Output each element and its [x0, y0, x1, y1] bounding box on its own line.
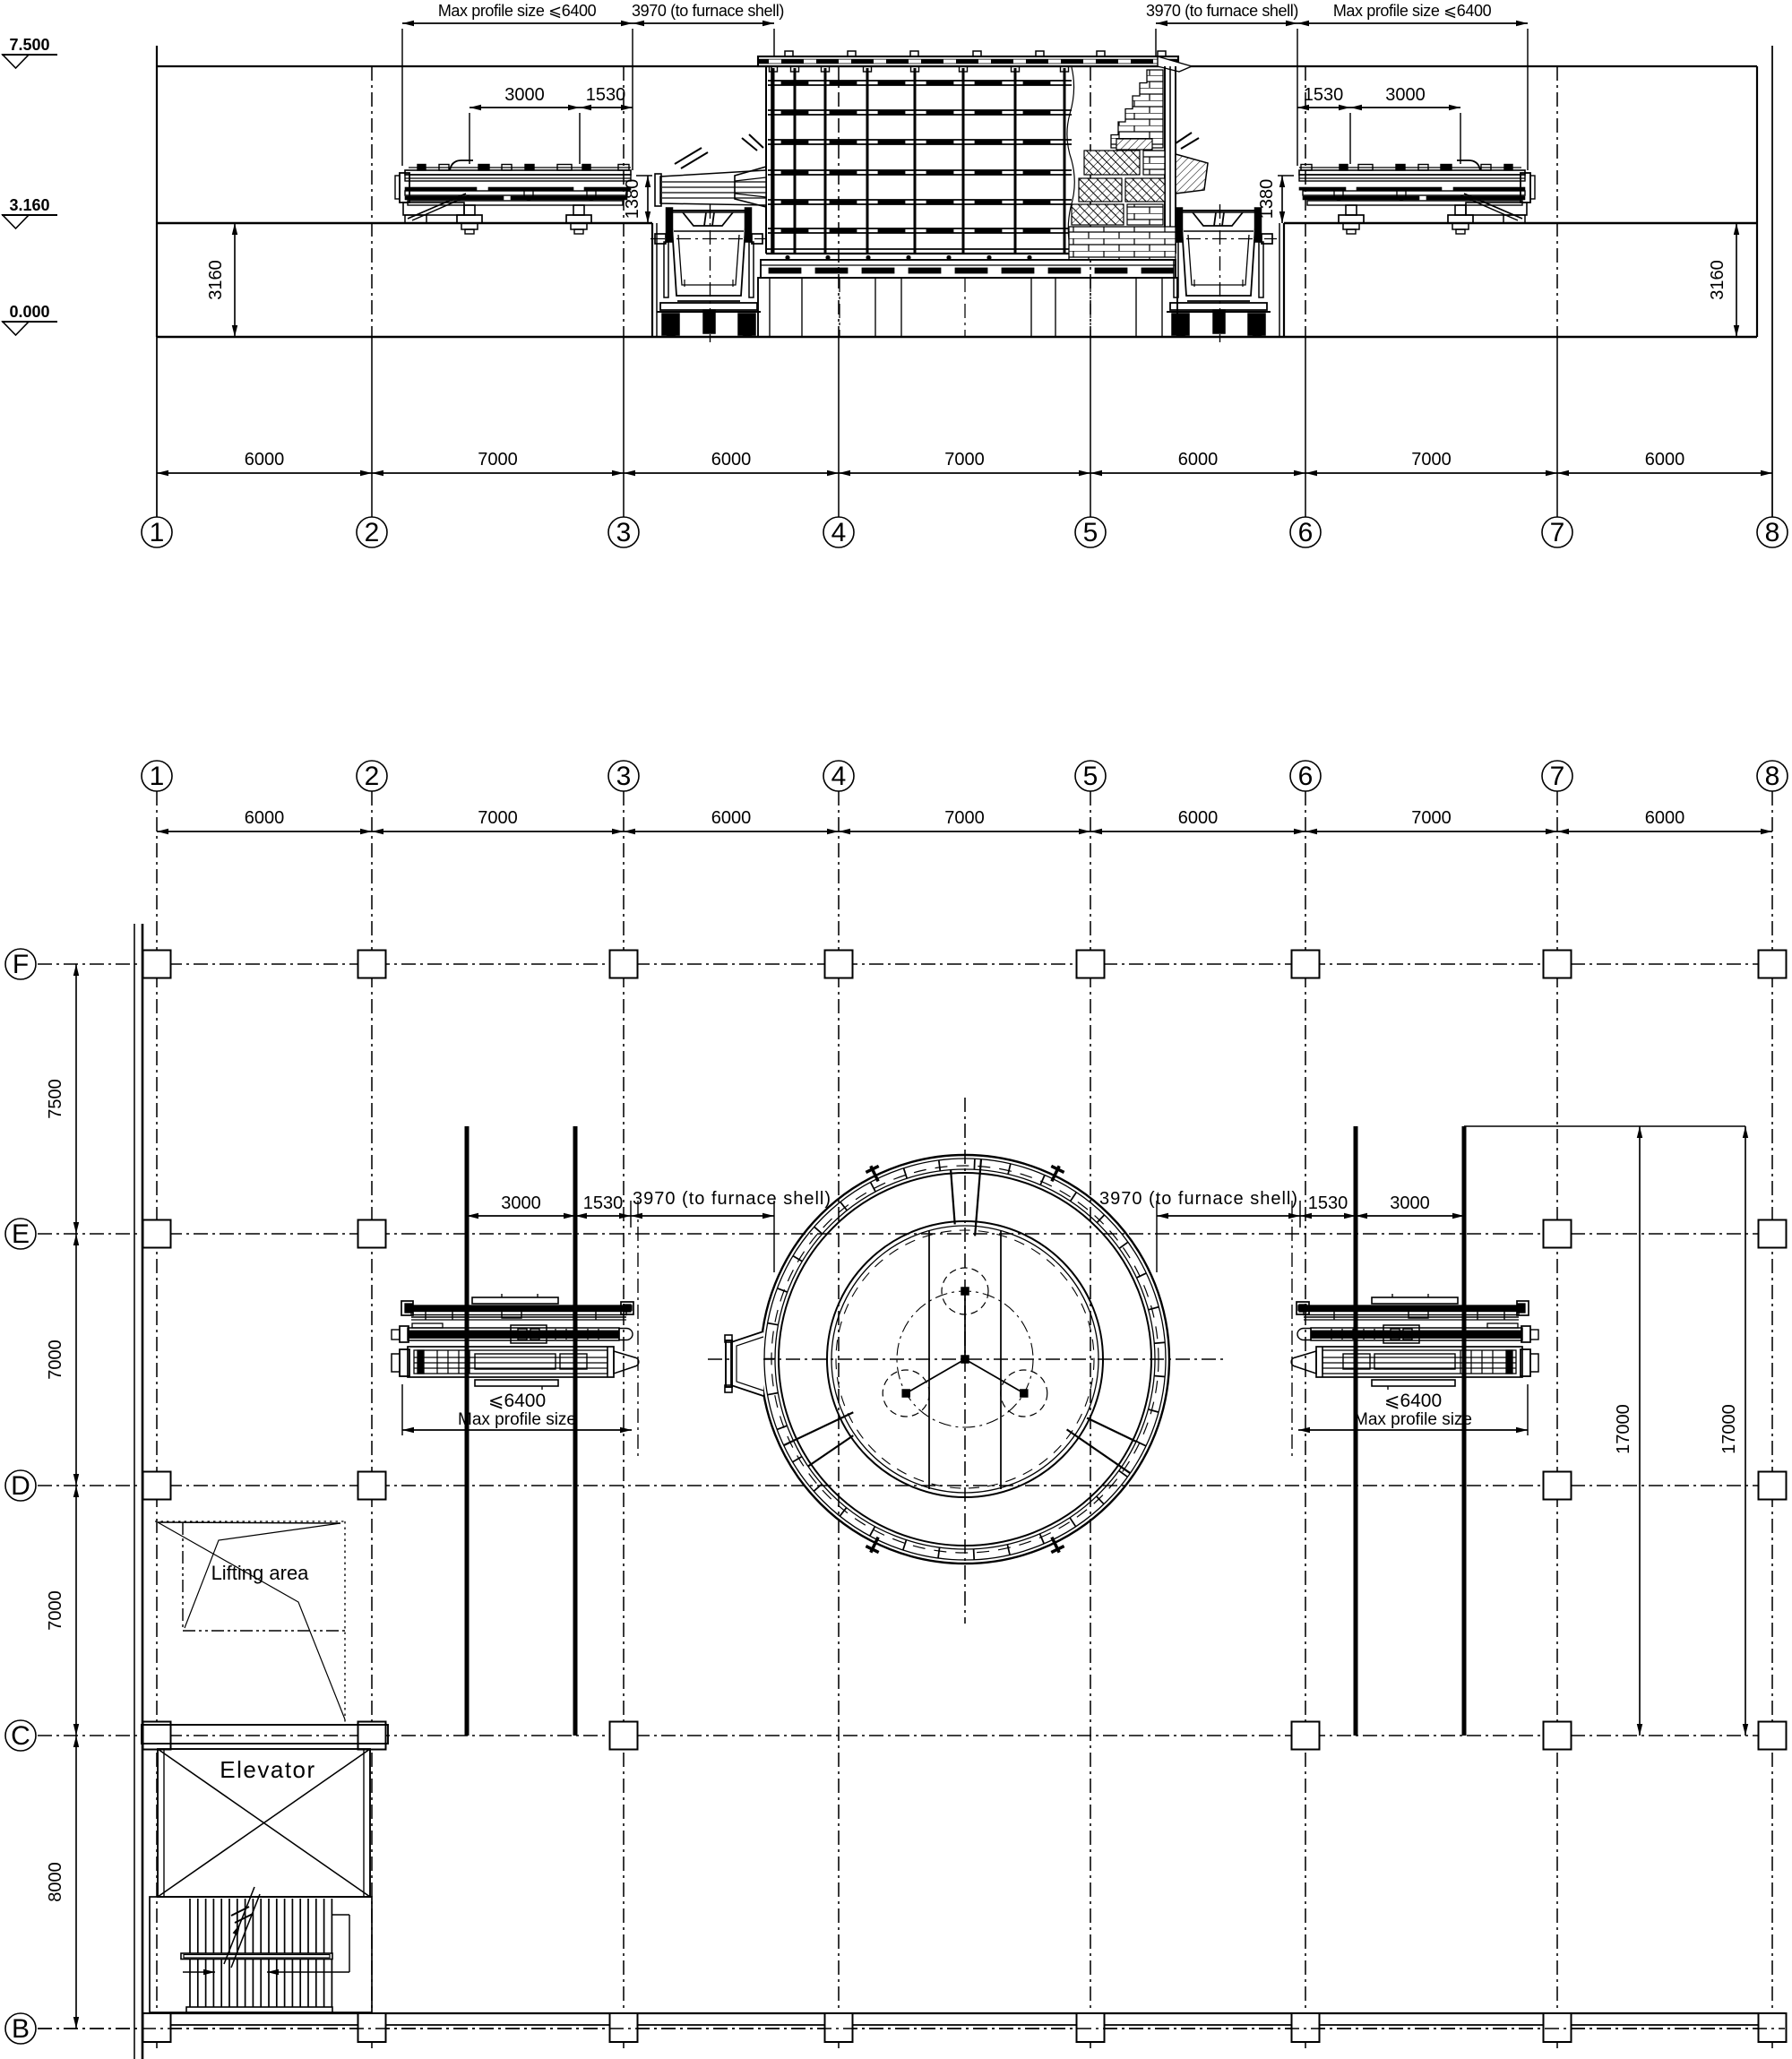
svg-text:7000: 7000: [944, 450, 985, 470]
svg-text:8: 8: [1765, 762, 1780, 791]
svg-text:6: 6: [1298, 762, 1314, 791]
svg-text:7: 7: [1550, 762, 1565, 791]
svg-text:3970 (to furnace shell): 3970 (to furnace shell): [1099, 1189, 1298, 1209]
svg-text:8000: 8000: [46, 1862, 65, 1902]
svg-text:3.160: 3.160: [9, 196, 49, 214]
svg-text:6000: 6000: [711, 450, 752, 470]
svg-text:Elevator: Elevator: [220, 1756, 315, 1783]
svg-text:⩽6400: ⩽6400: [1384, 1391, 1442, 1411]
svg-text:7500: 7500: [46, 1079, 65, 1119]
svg-text:7000: 7000: [1411, 808, 1452, 828]
svg-text:1: 1: [150, 762, 165, 791]
svg-text:3970 (to furnace shell): 3970 (to furnace shell): [632, 2, 784, 20]
svg-text:6: 6: [1298, 518, 1314, 547]
svg-text:3000: 3000: [501, 1193, 541, 1213]
svg-text:6000: 6000: [1178, 450, 1219, 470]
svg-text:7000: 7000: [46, 1590, 65, 1631]
svg-text:7.500: 7.500: [9, 36, 49, 54]
svg-text:6000: 6000: [1645, 808, 1685, 828]
svg-text:6000: 6000: [245, 450, 285, 470]
svg-text:B: B: [12, 2014, 30, 2044]
svg-text:7: 7: [1550, 518, 1565, 547]
svg-text:3160: 3160: [206, 260, 226, 300]
svg-text:Max profile size ⩽6400: Max profile size ⩽6400: [1333, 2, 1492, 20]
svg-text:3000: 3000: [1385, 85, 1426, 105]
svg-text:5: 5: [1083, 518, 1098, 547]
svg-text:⩽6400: ⩽6400: [488, 1391, 546, 1411]
svg-text:2: 2: [365, 762, 380, 791]
svg-text:17000: 17000: [1614, 1404, 1633, 1454]
svg-text:3000: 3000: [1390, 1193, 1430, 1213]
svg-text:3000: 3000: [504, 85, 545, 105]
svg-text:3160: 3160: [1708, 260, 1727, 300]
svg-text:3: 3: [616, 518, 632, 547]
svg-text:7000: 7000: [478, 450, 518, 470]
svg-text:17000: 17000: [1719, 1404, 1739, 1454]
svg-text:3970 (to furnace shell): 3970 (to furnace shell): [633, 1189, 831, 1209]
svg-text:6000: 6000: [1178, 808, 1219, 828]
svg-text:5: 5: [1083, 762, 1098, 791]
svg-text:8: 8: [1765, 518, 1780, 547]
svg-text:2: 2: [365, 518, 380, 547]
svg-text:3970 (to furnace shell): 3970 (to furnace shell): [1146, 2, 1298, 20]
svg-text:1530: 1530: [586, 85, 626, 105]
svg-text:1530: 1530: [1304, 85, 1344, 105]
svg-text:1530: 1530: [583, 1193, 624, 1213]
svg-text:D: D: [11, 1471, 30, 1501]
svg-text:Max profile size: Max profile size: [1354, 1410, 1472, 1429]
svg-text:7000: 7000: [478, 808, 518, 828]
svg-text:0.000: 0.000: [9, 303, 49, 321]
svg-text:6000: 6000: [1645, 450, 1685, 470]
svg-text:7000: 7000: [944, 808, 985, 828]
svg-text:4: 4: [831, 518, 847, 547]
svg-text:1530: 1530: [1308, 1193, 1348, 1213]
svg-text:Lifting area: Lifting area: [211, 1562, 310, 1584]
svg-text:6000: 6000: [711, 808, 752, 828]
svg-text:E: E: [12, 1219, 30, 1249]
svg-text:1: 1: [150, 518, 165, 547]
svg-text:7000: 7000: [46, 1340, 65, 1380]
svg-text:Max profile size ⩽6400: Max profile size ⩽6400: [438, 2, 597, 20]
svg-text:F: F: [13, 950, 29, 979]
svg-text:Max profile size: Max profile size: [458, 1410, 576, 1429]
svg-text:C: C: [11, 1721, 30, 1751]
svg-text:7000: 7000: [1411, 450, 1452, 470]
svg-text:3: 3: [616, 762, 632, 791]
svg-text:6000: 6000: [245, 808, 285, 828]
svg-text:4: 4: [831, 762, 847, 791]
svg-text:1380: 1380: [623, 179, 642, 220]
